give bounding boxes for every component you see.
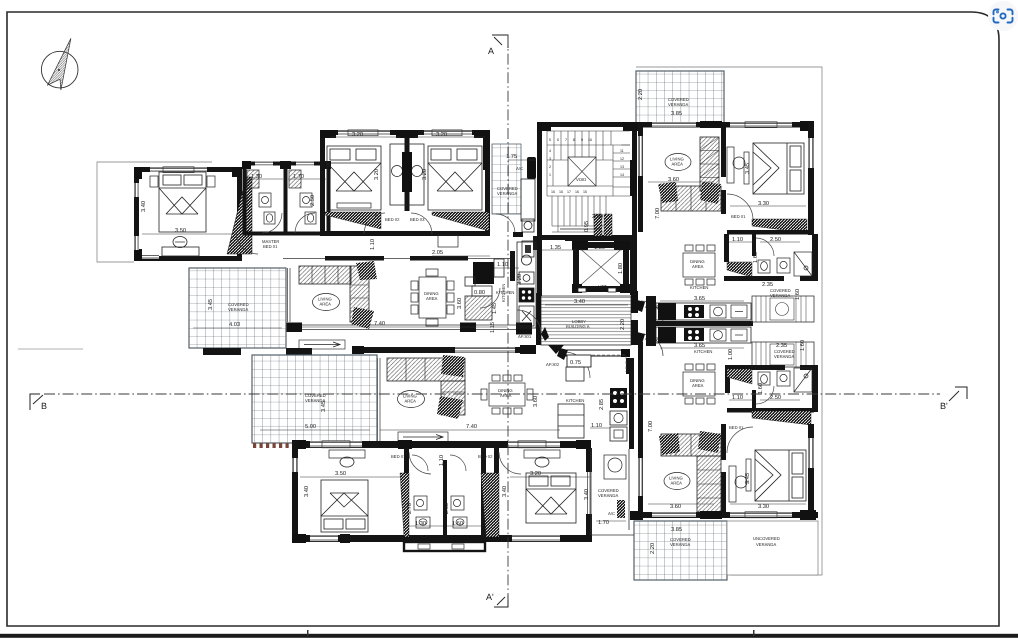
- svg-text:0.95: 0.95: [584, 221, 590, 232]
- svg-text:3.50: 3.50: [175, 228, 186, 234]
- svg-text:7.00: 7.00: [655, 208, 661, 219]
- svg-text:1.60: 1.60: [452, 521, 463, 527]
- svg-text:3: 3: [549, 157, 551, 161]
- svg-text:A': A': [486, 592, 494, 602]
- svg-text:7: 7: [565, 138, 567, 142]
- svg-text:3.60: 3.60: [670, 504, 681, 510]
- svg-text:1.10: 1.10: [732, 237, 743, 243]
- svg-text:3.45: 3.45: [208, 299, 214, 310]
- svg-text:3.20: 3.20: [517, 274, 523, 285]
- svg-text:1.00: 1.00: [728, 349, 734, 360]
- svg-text:15: 15: [583, 190, 587, 194]
- svg-text:AREA: AREA: [672, 162, 684, 167]
- svg-text:3.40: 3.40: [141, 201, 147, 212]
- svg-text:3.20: 3.20: [374, 169, 380, 180]
- svg-text:VERANDA: VERANDA: [756, 542, 776, 547]
- svg-text:11: 11: [620, 149, 624, 153]
- svg-text:4.03: 4.03: [229, 322, 240, 328]
- svg-text:3.40: 3.40: [502, 486, 508, 497]
- svg-text:A/C: A/C: [608, 511, 615, 516]
- svg-text:UNCOVERED: UNCOVERED: [753, 536, 780, 541]
- svg-text:A/C: A/C: [516, 166, 523, 171]
- svg-text:4: 4: [549, 149, 551, 153]
- svg-text:1.80: 1.80: [594, 245, 605, 251]
- svg-text:16: 16: [575, 190, 579, 194]
- svg-text:16: 16: [551, 190, 555, 194]
- svg-text:0.80: 0.80: [474, 290, 485, 296]
- svg-text:AREA: AREA: [405, 399, 417, 404]
- svg-text:B': B': [940, 401, 948, 411]
- svg-text:A: A: [488, 46, 494, 56]
- svg-text:1: 1: [549, 173, 551, 177]
- svg-text:AREA: AREA: [320, 302, 332, 307]
- svg-text:1.10: 1.10: [497, 262, 508, 268]
- svg-text:AREA: AREA: [671, 481, 683, 486]
- svg-text:1.35: 1.35: [550, 245, 561, 251]
- svg-text:VERANDA: VERANDA: [670, 542, 690, 547]
- svg-text:2.05: 2.05: [432, 250, 443, 256]
- svg-text:VERANDA: VERANDA: [598, 493, 618, 498]
- svg-text:2.70: 2.70: [407, 503, 413, 514]
- svg-text:3.20: 3.20: [422, 169, 428, 180]
- svg-text:2.50: 2.50: [770, 237, 781, 243]
- svg-text:3.30: 3.30: [758, 504, 769, 510]
- svg-text:2.20: 2.20: [650, 543, 656, 554]
- svg-text:2.20: 2.20: [638, 89, 644, 100]
- svg-text:3.50: 3.50: [335, 471, 346, 477]
- svg-text:1.60: 1.60: [753, 252, 759, 263]
- svg-text:2.50: 2.50: [770, 395, 781, 401]
- svg-text:14: 14: [620, 173, 624, 177]
- svg-text:1.60: 1.60: [800, 340, 806, 351]
- svg-text:2.60: 2.60: [444, 503, 450, 514]
- svg-text:KITCHEN: KITCHEN: [694, 349, 712, 354]
- svg-text:BED 02: BED 02: [385, 217, 400, 222]
- svg-text:9: 9: [581, 138, 583, 142]
- svg-text:3.60: 3.60: [457, 298, 463, 309]
- svg-text:0.75: 0.75: [570, 360, 581, 366]
- svg-text:16: 16: [559, 190, 563, 194]
- svg-text:BED 01: BED 01: [731, 214, 746, 219]
- svg-text:3.60: 3.60: [533, 396, 539, 407]
- svg-text:VERANDA: VERANDA: [228, 307, 248, 312]
- svg-text:2.20: 2.20: [620, 319, 626, 330]
- svg-text:3.65: 3.65: [694, 343, 705, 349]
- svg-text:7.00: 7.00: [648, 421, 654, 432]
- svg-text:1.30: 1.30: [415, 521, 426, 527]
- svg-text:3.45: 3.45: [745, 163, 751, 174]
- svg-text:3.65: 3.65: [694, 296, 705, 302]
- svg-text:VERANDA: VERANDA: [668, 102, 688, 107]
- svg-text:5: 5: [549, 138, 551, 142]
- svg-text:3.85: 3.85: [671, 111, 682, 117]
- svg-text:VOID: VOID: [576, 177, 586, 182]
- svg-text:7.40: 7.40: [374, 321, 385, 327]
- svg-text:VERANDA: VERANDA: [774, 354, 794, 359]
- svg-text:6: 6: [557, 138, 559, 142]
- svg-text:BED 01: BED 01: [263, 244, 278, 249]
- svg-text:3.85: 3.85: [671, 527, 682, 533]
- svg-text:BUILDING A: BUILDING A: [566, 324, 590, 329]
- svg-text:KITCHEN: KITCHEN: [690, 285, 708, 290]
- svg-text:3.60: 3.60: [668, 177, 679, 183]
- svg-text:BED 01: BED 01: [391, 454, 406, 459]
- svg-text:1.10: 1.10: [732, 395, 743, 401]
- svg-text:3.40: 3.40: [304, 486, 310, 497]
- svg-text:1.80: 1.80: [618, 263, 624, 274]
- svg-text:3.40: 3.40: [574, 299, 585, 305]
- svg-text:1.60: 1.60: [758, 383, 764, 394]
- svg-text:1.30: 1.30: [251, 174, 262, 180]
- svg-text:AREA: AREA: [692, 383, 704, 388]
- svg-text:AREA: AREA: [692, 264, 704, 269]
- svg-text:3.20: 3.20: [352, 132, 363, 138]
- svg-text:2.00: 2.00: [592, 214, 603, 220]
- svg-text:VERANDA: VERANDA: [497, 191, 517, 196]
- svg-text:2.60: 2.60: [244, 195, 250, 206]
- svg-text:KITCHEN: KITCHEN: [566, 398, 584, 403]
- svg-text:AP.301: AP.301: [518, 334, 532, 339]
- svg-text:3.20: 3.20: [530, 471, 541, 477]
- svg-text:12: 12: [620, 157, 624, 161]
- svg-text:BED 03: BED 03: [410, 217, 425, 222]
- svg-text:1.60: 1.60: [795, 289, 801, 300]
- svg-text:3.20: 3.20: [436, 132, 447, 138]
- svg-text:2.50: 2.50: [310, 195, 316, 206]
- svg-text:8: 8: [573, 138, 575, 142]
- svg-text:KITCHEN: KITCHEN: [501, 284, 506, 302]
- svg-text:3.40: 3.40: [584, 489, 590, 500]
- svg-text:B: B: [41, 401, 47, 411]
- svg-text:LIFT: LIFT: [598, 284, 607, 289]
- svg-text:3.30: 3.30: [758, 201, 769, 207]
- svg-text:7.40: 7.40: [466, 424, 477, 430]
- svg-text:1.45: 1.45: [492, 303, 498, 314]
- svg-text:3.45: 3.45: [321, 401, 327, 412]
- svg-text:2.85: 2.85: [599, 399, 605, 410]
- svg-text:10: 10: [588, 138, 592, 142]
- svg-text:1.10: 1.10: [591, 423, 602, 429]
- svg-text:BED 02: BED 02: [478, 454, 493, 459]
- svg-text:1.70: 1.70: [293, 174, 304, 180]
- svg-text:1.10: 1.10: [370, 239, 376, 250]
- svg-text:13: 13: [620, 165, 624, 169]
- svg-text:AP.302: AP.302: [546, 362, 560, 367]
- svg-text:VERANDA: VERANDA: [770, 293, 790, 298]
- svg-text:AREA: AREA: [426, 296, 438, 301]
- svg-text:17: 17: [567, 190, 571, 194]
- svg-text:1.15: 1.15: [490, 322, 496, 333]
- svg-text:2: 2: [549, 165, 551, 169]
